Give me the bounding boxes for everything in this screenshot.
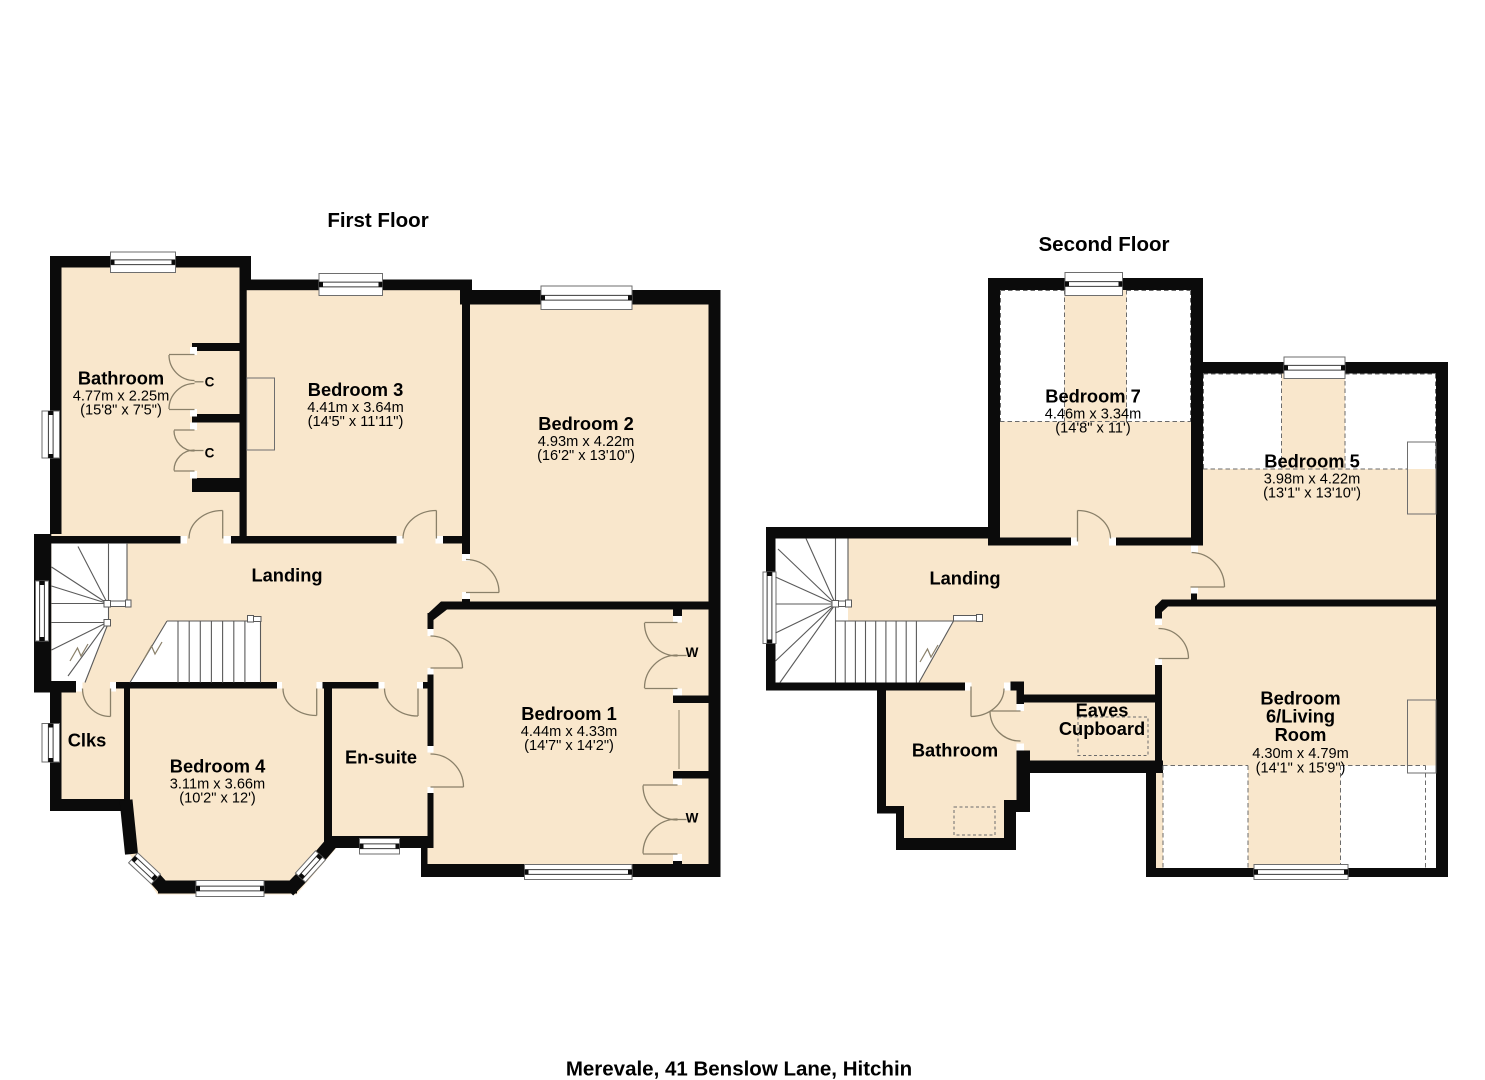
- svg-text:(13'1" x 13'10"): (13'1" x 13'10"): [1263, 486, 1361, 502]
- svg-text:(14'8" x 11'): (14'8" x 11'): [1055, 421, 1130, 437]
- svg-text:Bedroom 2: Bedroom 2: [538, 413, 634, 434]
- svg-text:Bedroom 4: Bedroom 4: [170, 756, 266, 777]
- svg-text:Bedroom 7: Bedroom 7: [1045, 386, 1141, 407]
- svg-text:(14'1" x 15'9"): (14'1" x 15'9"): [1256, 761, 1346, 777]
- svg-text:W: W: [686, 810, 699, 825]
- svg-text:Bathroom: Bathroom: [912, 740, 998, 761]
- svg-text:Landing: Landing: [251, 565, 322, 586]
- svg-text:(14'7" x 14'2"): (14'7" x 14'2"): [524, 738, 614, 754]
- svg-text:Clks: Clks: [68, 730, 107, 751]
- svg-text:(15'8" x 7'5"): (15'8" x 7'5"): [80, 403, 162, 419]
- svg-text:En-suite: En-suite: [345, 747, 417, 768]
- svg-text:Landing: Landing: [929, 568, 1000, 589]
- svg-text:Merevale, 41 Benslow Lane, Hit: Merevale, 41 Benslow Lane, Hitchin: [566, 1057, 912, 1080]
- svg-text:(14'5" x 11'11"): (14'5" x 11'11"): [308, 414, 404, 430]
- svg-text:Room: Room: [1275, 724, 1327, 745]
- svg-text:First Floor: First Floor: [327, 209, 428, 232]
- svg-text:(16'2" x 13'10"): (16'2" x 13'10"): [537, 448, 635, 464]
- svg-text:(10'2" x 12'): (10'2" x 12'): [179, 791, 255, 807]
- svg-text:Bedroom 1: Bedroom 1: [521, 703, 617, 724]
- svg-text:Bedroom 5: Bedroom 5: [1264, 451, 1360, 472]
- svg-text:C: C: [205, 374, 215, 389]
- svg-text:Bedroom 3: Bedroom 3: [308, 379, 404, 400]
- svg-text:C: C: [205, 445, 215, 460]
- svg-text:Bathroom: Bathroom: [78, 368, 164, 389]
- svg-text:Second Floor: Second Floor: [1039, 233, 1170, 256]
- svg-text:Cupboard: Cupboard: [1059, 718, 1145, 739]
- svg-text:W: W: [686, 645, 699, 660]
